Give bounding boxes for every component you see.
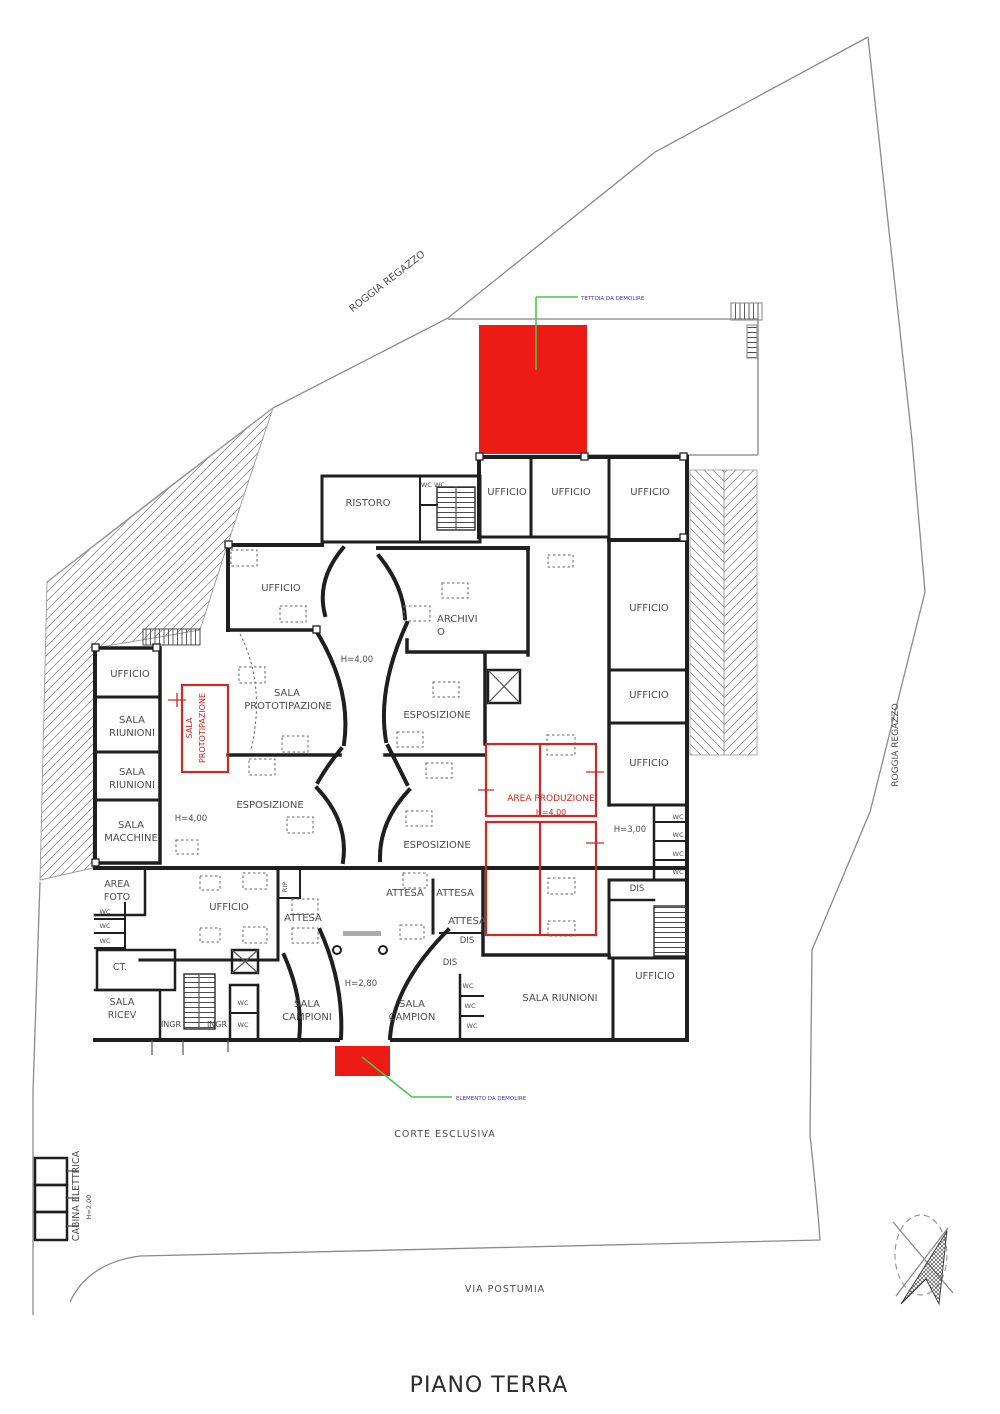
plan-label: RIUNIONI (109, 728, 155, 739)
plan-label: PIANO TERRA (410, 1373, 569, 1398)
plan-label: RISTORO (345, 498, 390, 509)
plan-label: WC (238, 1021, 249, 1029)
east-chevron-hatch-left (690, 470, 724, 755)
plan-label: ARCHIVI (437, 614, 478, 625)
plan-label: WC (465, 1002, 476, 1010)
plan-label: WC (463, 982, 474, 990)
door-swing-dashed (240, 634, 256, 750)
compass-rose (893, 1215, 953, 1304)
plan-label: WC (673, 850, 684, 858)
plan-label: WC WC (421, 481, 445, 489)
plan-label: SALA (118, 820, 144, 831)
plan-label: DIS (460, 936, 474, 946)
plan-label: DIS (630, 884, 644, 894)
fixtures (176, 550, 575, 943)
plan-label: WC (100, 937, 111, 945)
plan-label: UFFICIO (630, 487, 670, 498)
plan-label: UFFICIO (110, 669, 150, 680)
plan-label: H=4,00 (536, 808, 567, 817)
plan-label: UFFICIO (629, 758, 669, 769)
plan-label: SALA (110, 997, 135, 1008)
plan-label: ATTESA (386, 888, 424, 899)
plan-label: INGR (207, 1020, 228, 1029)
stairs-southeast (654, 906, 687, 956)
plan-label: RICEV (108, 1010, 137, 1021)
plan-label: ESPOSIZIONE (403, 840, 470, 851)
plan-label: WC (100, 922, 111, 930)
plan-label: SALA (294, 999, 320, 1010)
plan-label: UFFICIO (629, 603, 669, 614)
plan-label: ATTESA (436, 888, 474, 899)
threshold-bar (343, 931, 381, 936)
plan-label: ATTESA (448, 916, 486, 927)
floor-plan-drawing: ROGGIA REGAZZOROGGIA REGAZZOCORTE ESCLUS… (0, 0, 1000, 1414)
plan-label: H=3,00 (614, 825, 646, 835)
plan-label: RIUNIONI (109, 780, 155, 791)
plan-label: SALA (119, 767, 145, 778)
plan-label: PROTOTIPAZIONE (198, 693, 207, 763)
plan-label: WC (673, 868, 684, 876)
plan-label: WC (100, 908, 111, 916)
plan-label: H=2,80 (345, 979, 377, 989)
plan-label: UFFICIO (629, 690, 669, 701)
plan-label: SALA (274, 688, 300, 699)
plan-label: H=2,00 (85, 1195, 93, 1220)
plan-label: DIS (443, 958, 457, 968)
plan-label: CT. (113, 962, 127, 973)
plan-label: ROGGIA REGAZZO (891, 703, 901, 786)
red-demolition-roof (479, 325, 587, 454)
plan-label: FOTO (104, 892, 130, 903)
parapet-strip-top (731, 303, 762, 320)
stairs-and-elevators (184, 487, 687, 1029)
plan-label: WC (673, 831, 684, 839)
plan-label: ATTESA (284, 913, 322, 924)
plan-label: WC (673, 813, 684, 821)
plan-label: ELEMENTO DA DEMOLIRE (456, 1096, 527, 1102)
plan-label: TETTOIA DA DEMOLIRE (580, 296, 645, 302)
plan-label: ROGGIA REGAZZO (348, 249, 428, 315)
plan-label: ESPOSIZIONE (403, 710, 470, 721)
plan-label: AREA PRODUZIONE (507, 794, 595, 804)
plan-label: SALA (119, 715, 145, 726)
site-perimeter-left-upper (33, 882, 40, 1092)
elevator-main (488, 670, 520, 703)
door-pivot (379, 946, 387, 954)
site-boundary (33, 37, 925, 1315)
door-pivot (333, 946, 341, 954)
floor-plan-page: ROGGIA REGAZZOROGGIA REGAZZOCORTE ESCLUS… (0, 0, 1000, 1414)
plan-label: SALA (185, 717, 194, 738)
plan-label: CORTE ESCLUSIVA (394, 1129, 496, 1140)
east-chevron-hatch-right (724, 470, 757, 755)
plan-label: UFFICIO (487, 487, 527, 498)
plan-label: CABINA ELETTRICA (71, 1150, 82, 1241)
plan-label: WC (467, 1022, 478, 1030)
plan-label: SALA RIUNIONI (522, 993, 597, 1004)
plan-label: RIP (281, 882, 289, 892)
plan-label: CAMPIONI (282, 1012, 332, 1023)
plan-label: CAMPION (389, 1012, 436, 1023)
plan-label: ESPOSIZIONE (236, 800, 303, 811)
plan-label: UFFICIO (261, 583, 301, 594)
plan-label: UFFICIO (635, 971, 675, 982)
plan-label: WC (238, 999, 249, 1007)
plan-label: H=4,00 (175, 814, 207, 824)
plan-label: H=4,00 (341, 655, 373, 665)
plan-label: UFFICIO (209, 902, 249, 913)
plan-label: INGR (161, 1020, 182, 1029)
plan-label: UFFICIO (551, 487, 591, 498)
parapet-strip-side (747, 325, 757, 358)
plan-label: SALA (399, 999, 425, 1010)
plan-label: AREA (104, 879, 130, 890)
plan-label: MACCHINE (104, 833, 158, 844)
area-produzione-outline (478, 744, 604, 935)
red-demolition-element (335, 1046, 390, 1076)
plan-label: O (437, 627, 445, 638)
plan-label: VIA POSTUMIA (465, 1284, 545, 1295)
plan-label: PROTOTIPAZIONE (244, 701, 332, 712)
north-needle (901, 1231, 947, 1304)
